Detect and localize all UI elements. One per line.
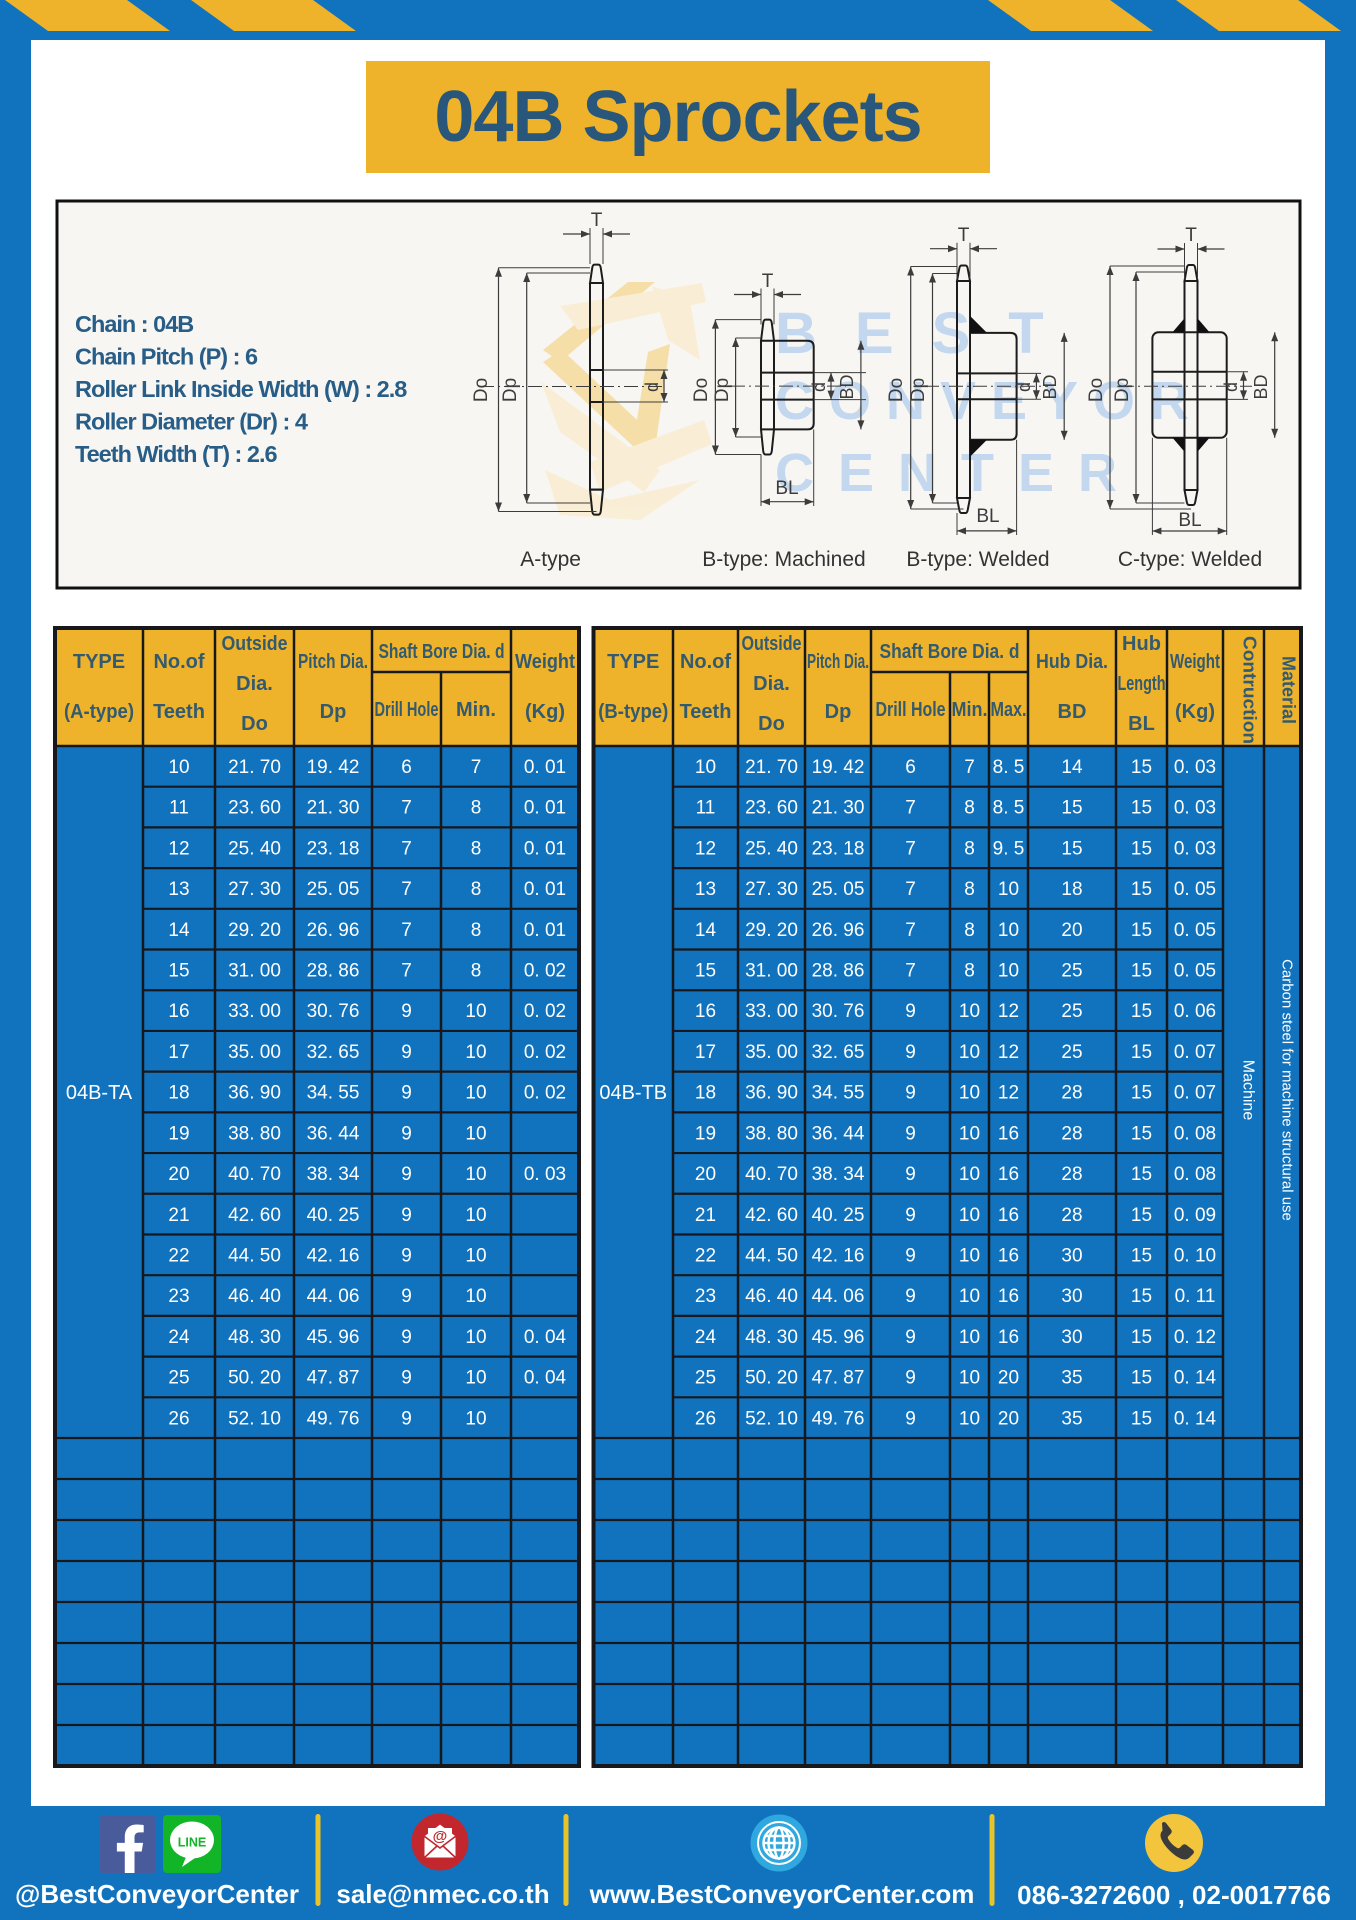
svg-text:086-3272600 , 02-0017766: 086-3272600 , 02-0017766 — [1017, 1880, 1331, 1910]
svg-text:@BestConveyorCenter: @BestConveyorCenter — [15, 1879, 299, 1909]
svg-text:@: @ — [433, 1828, 448, 1845]
svg-text:LINE: LINE — [178, 1836, 206, 1850]
svg-text:www.BestConveyorCenter.com: www.BestConveyorCenter.com — [589, 1879, 975, 1909]
svg-text:sale@nmec.co.th: sale@nmec.co.th — [336, 1879, 549, 1909]
